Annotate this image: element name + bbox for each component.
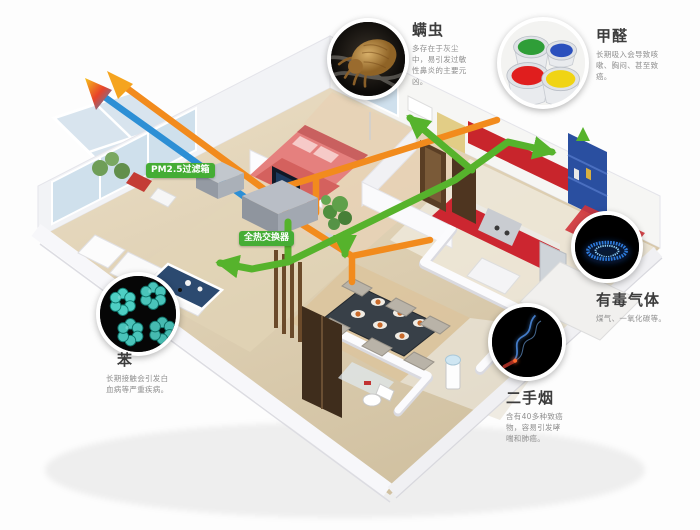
cigarette-smoke-photo xyxy=(492,307,562,377)
pollutant-desc-benzene: 长期接触会引发白血病等严重疾病。 xyxy=(106,373,172,396)
pollutant-desc-formaldehyde: 长期吸入会导致咳嗽、胸闷、甚至致癌。 xyxy=(596,49,662,83)
callout-photo-benzene xyxy=(96,272,180,356)
pollutant-desc-dust-mite: 多存在于灰尘中，易引发过敏性鼻炎的主要元凶。 xyxy=(412,43,472,88)
callout-label-toxic-gas: 有毒气体 煤气、一氧化碳等。 xyxy=(596,292,672,324)
callout-label-secondhand-smoke: 二手烟 含有40多种致癌物，容易引发哮喘和肺癌。 xyxy=(506,390,564,444)
dust-mite-photo xyxy=(331,22,405,96)
callout-photo-cigarette-smoke xyxy=(488,303,566,381)
paint-buckets-photo xyxy=(501,21,585,105)
callout-photo-dust-mite xyxy=(327,18,409,100)
callout-label-benzene: 苯 长期接触会引发白血病等严重疾病。 xyxy=(106,352,172,395)
fresh-air-system-infographic: 螨虫 多存在于灰尘中，易引发过敏性鼻炎的主要元凶。 甲醛 长期吸入会导致咳嗽、胸… xyxy=(0,0,700,530)
callout-photo-gas-flame xyxy=(571,211,643,283)
pollutant-title-secondhand-smoke: 二手烟 xyxy=(506,390,564,407)
pollutant-title-toxic-gas: 有毒气体 xyxy=(596,292,672,309)
pollutant-title-formaldehyde: 甲醛 xyxy=(596,28,662,45)
callout-label-dust-mite: 螨虫 多存在于灰尘中，易引发过敏性鼻炎的主要元凶。 xyxy=(412,22,472,88)
callout-label-formaldehyde: 甲醛 长期吸入会导致咳嗽、胸闷、甚至致癌。 xyxy=(596,28,662,82)
pollutant-title-benzene: 苯 xyxy=(117,352,172,369)
pollutant-desc-secondhand-smoke: 含有40多种致癌物，容易引发哮喘和肺癌。 xyxy=(506,411,564,445)
pollutant-desc-toxic-gas: 煤气、一氧化碳等。 xyxy=(596,313,672,324)
gas-burner-flame-photo xyxy=(575,215,639,279)
pm25-filter-box-label-chip: PM2.5过滤箱 xyxy=(146,163,215,178)
heat-exchanger-label-chip: 全热交换器 xyxy=(239,231,294,246)
bucket-blue xyxy=(546,41,576,67)
benzene-molecule-photo xyxy=(100,276,176,352)
water-dispenser xyxy=(446,355,461,389)
pollutant-title-dust-mite: 螨虫 xyxy=(412,22,472,39)
callout-photo-paint-buckets xyxy=(497,17,589,109)
supply-vent-up-arrow xyxy=(576,127,590,141)
